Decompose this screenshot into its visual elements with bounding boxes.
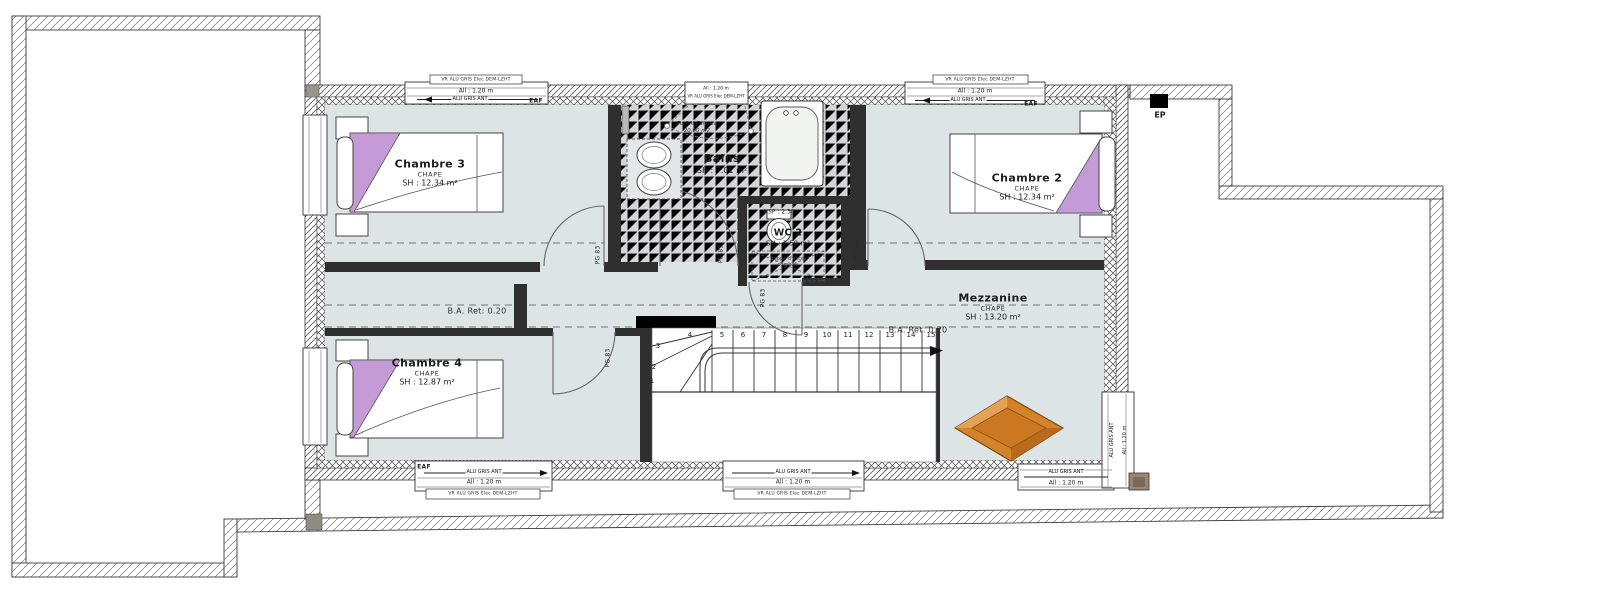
room-label-chambre4: Chambre 4 CHAPE SH : 12.87 m² — [392, 357, 463, 386]
window-sill-label: All : 1.20 m — [1123, 426, 1129, 455]
window-roller-label: VR ALU GRIS Elec DEM-LZHT — [448, 491, 517, 496]
window-sill-label: All : 1.20 m — [703, 86, 729, 91]
stair-step-number: 7 — [762, 331, 766, 339]
stair-step-number: 11 — [844, 331, 853, 339]
stair-step-number: 10 — [823, 331, 832, 339]
air-inlet-label: EAF — [417, 465, 431, 472]
room-finish: CHAPE — [395, 171, 466, 178]
window-frame-label: ALU GRIS ANT — [465, 470, 502, 476]
door-size-label: PG 83 — [606, 349, 613, 368]
window-chambre4-left — [303, 348, 327, 445]
floor-plan-drawing — [0, 0, 1600, 600]
air-inlet-label: EAF — [529, 99, 543, 106]
stair-step-number: 9 — [804, 331, 808, 339]
bed-pillow — [337, 363, 353, 435]
stair-step-number: 5 — [720, 331, 724, 339]
window-roller-label: VR ALU GRIS Elec DEM-LZHT — [687, 95, 744, 100]
window-roller-label: VR ALU GRIS Elec DEM-LZHT — [945, 77, 1014, 82]
rainwater-label: EP — [1154, 110, 1165, 119]
nightstand — [1080, 111, 1112, 133]
stair-step-number: 15 — [927, 331, 936, 339]
nightstand — [1080, 215, 1112, 237]
concrete-beam — [636, 316, 716, 328]
room-label-chambre3: Chambre 3 CHAPE SH : 12.34 m² — [395, 158, 466, 187]
room-name: Chambre 3 — [395, 158, 466, 171]
floor-plan: Chambre 3 CHAPE SH : 12.34 m² Chambre 2 … — [0, 0, 1600, 600]
double-washbasin — [627, 139, 681, 199]
attic-hatch-label: Trappe d'accès combles — [769, 256, 806, 268]
room-label-chambre2: Chambre 2 CHAPE SH : 12.34 m² — [992, 172, 1063, 201]
window-sill-label: All : 1.20 m — [776, 480, 810, 487]
beam-note-right: B.A. Ret. 0.20 — [889, 325, 948, 334]
room-name: Bains — [697, 153, 747, 166]
towel-radiator — [622, 106, 629, 134]
window-sill-label: All : 1.20 m — [958, 89, 992, 96]
room-area: SH : 12.87 m² — [392, 377, 463, 386]
room-area: SH : 7.01 m² — [697, 166, 747, 175]
rainwater-downpipe — [1150, 94, 1168, 108]
window-chambre4-bottom — [415, 461, 552, 491]
wall-post-top — [306, 85, 319, 97]
nightstand — [336, 214, 368, 236]
window-frame-label: ALU GRIS ANT — [774, 470, 811, 476]
window-frame-label: ALU GRIS ANT — [949, 98, 986, 104]
stair-step-number: 14 — [907, 331, 916, 339]
air-inlet-label: EAF — [1024, 102, 1038, 109]
room-area: SH : 12.34 m² — [395, 178, 466, 187]
room-label-wc2: WC 2 SH : 1.50 m² — [766, 229, 810, 248]
window-frame-label: ALU GRIS ANT — [1047, 470, 1084, 476]
room-finish: CHAPE — [392, 370, 463, 377]
beam-note-left: B.A. Ret: 0.20 — [448, 306, 507, 315]
stair-step-number: 2 — [652, 363, 656, 371]
room-area: SH : 12.34 m² — [992, 192, 1063, 201]
window-roller-label: VR ALU GRIS Elec DEM-LZHT — [441, 77, 510, 82]
door-size-label: PG 83 — [596, 246, 603, 265]
room-name: Mezzanine — [958, 292, 1027, 305]
window-roller-label: VR ALU GRIS Elec DEM-LZHT — [757, 491, 826, 496]
room-name: WC 2 — [766, 229, 810, 240]
staircase — [652, 328, 943, 462]
room-label-mezzanine: Mezzanine CHAPE SH : 13.20 m² — [958, 292, 1027, 321]
window-frame-label: ALU GRIS ANT — [451, 97, 488, 103]
stair-step-number: 4 — [688, 331, 692, 339]
room-area: SH : 13.20 m² — [958, 312, 1027, 321]
stair-step-number: 6 — [741, 331, 745, 339]
stair-step-number: 8 — [783, 331, 787, 339]
bathtub — [761, 101, 823, 186]
bed-pillow — [337, 137, 353, 209]
window-bottom-center — [723, 461, 864, 491]
window-sill-label: All : 1.20 m — [1049, 481, 1083, 488]
door-size-label: PG 83 — [855, 241, 862, 260]
room-label-bains: Bains SH : 7.01 m² — [697, 153, 747, 175]
nightstand — [336, 340, 368, 361]
faience-note: Forfait Faïence 20.00 m2 — [677, 121, 718, 135]
stair-step-number: 3 — [656, 342, 660, 350]
bed-pillow — [1099, 137, 1115, 211]
window-sill-label: All : 1.20 m — [459, 89, 493, 96]
stair-step-number: 12 — [865, 331, 874, 339]
room-name: Chambre 2 — [992, 172, 1063, 185]
window-chambre3-left — [303, 115, 327, 215]
window-sill-label: All : 1.20 m — [467, 480, 501, 487]
structural-post — [1129, 473, 1149, 490]
stair-step-number: 13 — [886, 331, 895, 339]
stair-step-number: 1 — [650, 377, 654, 385]
wall-post-bottom — [306, 514, 322, 530]
wc2-ceiling-height: HSP : 2.30 — [763, 210, 794, 217]
room-area: SH : 1.50 m² — [766, 239, 810, 247]
room-finish: CHAPE — [992, 185, 1063, 192]
room-name: Chambre 4 — [392, 357, 463, 370]
room-finish: CHAPE — [958, 305, 1027, 312]
door-size-label: PG 83 — [761, 289, 768, 308]
window-frame-label: ALU GRIS ANT — [1110, 421, 1116, 458]
door-size-label: PG 83 — [719, 245, 726, 264]
